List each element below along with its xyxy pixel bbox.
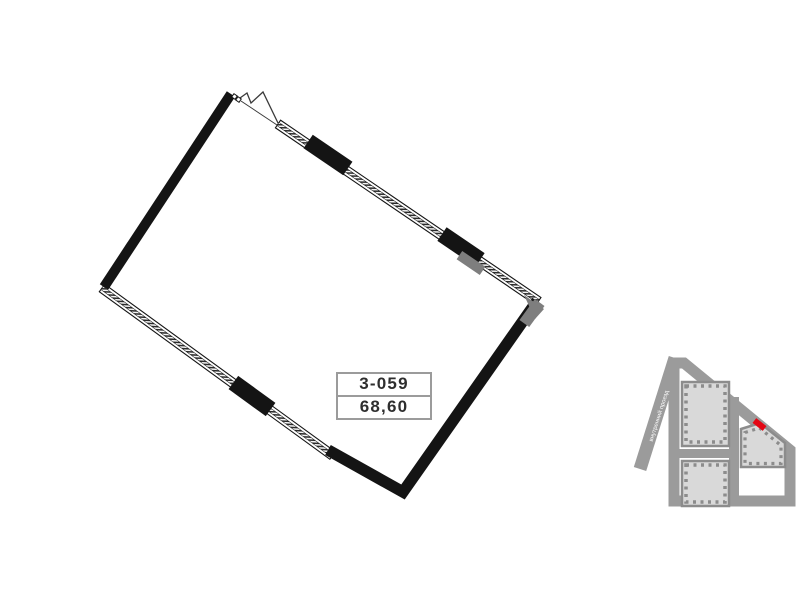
unit-info-box: 3-059 68,60 — [336, 372, 432, 420]
floorplan-page: внутренний проезд 3-059 68,60 — [0, 0, 800, 600]
building-block-top-left — [682, 382, 729, 446]
wall-top-left — [104, 94, 231, 287]
floor-plan-canvas: внутренний проезд — [0, 0, 800, 600]
unit-floor-plan — [99, 92, 544, 492]
pier-block — [304, 135, 353, 176]
entry-opening-detail — [232, 92, 278, 125]
unit-area: 68,60 — [338, 397, 430, 418]
site-minimap: внутренний проезд — [640, 358, 790, 506]
pier-block — [229, 376, 276, 416]
window-strip-bottom — [99, 284, 335, 459]
building-block-bottom-left — [682, 461, 729, 506]
unit-number: 3-059 — [338, 374, 430, 397]
